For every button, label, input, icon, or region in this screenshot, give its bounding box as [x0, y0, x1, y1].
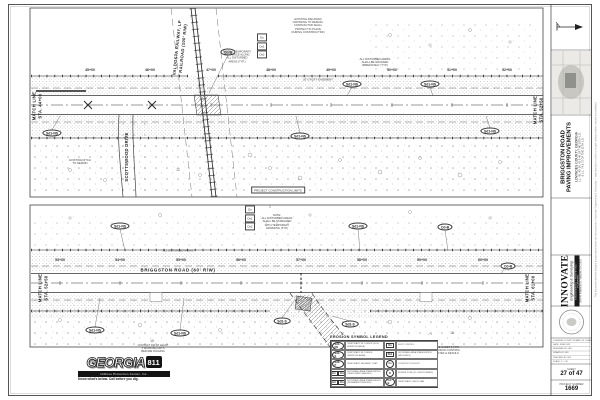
legend-symbol-cell: Ds1	[384, 350, 396, 359]
text-line: STA. 61+00	[530, 274, 536, 303]
georgia811-logo: GEORGIA 811 Utilities Protection Center,…	[78, 353, 170, 381]
erosion-symbol: Sd1-NS	[290, 133, 309, 140]
plan-sheet: MATCH LINESTA. 44+00MATCH LINESTA. 52+50…	[0, 0, 600, 400]
text-line: 20' UTILITY EASEMENT	[303, 78, 333, 81]
legend-row: Sd1-NSTEMPORARY SILT FENCE (NON-SENSITIV…	[331, 341, 437, 350]
erosion-legend: EROSION SYMBOL LEGEND Sd1-NSTEMPORARY SI…	[330, 335, 438, 388]
text-line: ALL DISTURBED AREAS	[163, 249, 194, 252]
title-block-info-rows: LOWNDES COUNTY BOARD OF COMMISSIONERSDAT…	[552, 339, 592, 365]
call-before-dig-tagline: Know what's below. Call before you dig.	[78, 377, 170, 381]
erosion-symbol: Sd1-S	[342, 321, 359, 328]
project-title-block: BRIGGSTON ROAD PAVING IMPROVEMENTS LOWND…	[552, 115, 592, 198]
legend-description: TEMPORARY CHECK DAM	[396, 378, 438, 387]
text-line: MATCH LINE	[524, 274, 530, 303]
erosion-symbol: Sd1-NS	[110, 223, 129, 230]
legend-symbol-cell: Sd2-P	[331, 359, 345, 368]
project-number-value: 1669	[565, 386, 578, 392]
legend-description: DISTURBED AREA STABILIZATION (PERMANENT …	[345, 378, 384, 387]
station-label: 53+00	[55, 258, 65, 262]
erosion-symbol: Cd-B	[500, 263, 515, 270]
project-title-line1: BRIGGSTON ROAD	[560, 130, 567, 184]
sheet-number-cell: SHEET 27 of 47	[552, 365, 592, 380]
station-label: 46+00	[145, 68, 155, 72]
firm-tagline: Engineering & Surveying	[570, 261, 574, 301]
station-label: 50+00	[387, 68, 397, 72]
legend-symbol-cell: Sd1-S	[331, 350, 345, 359]
sheet-value: 27 of 47	[560, 371, 582, 377]
station-label: 56+00	[236, 258, 246, 262]
text-line: STA. 44+00	[37, 92, 43, 121]
text-line: SCOTTSWOOD DRIVE	[124, 132, 130, 181]
text-line: MATCH LINE	[31, 92, 37, 121]
symbol-oval: Sd1-S	[332, 351, 344, 359]
legend-row: Sd2-PTEMPORARY SEDIMENT TRAPCoCONSTRUCTI…	[331, 359, 437, 368]
ref-number: 15	[450, 331, 454, 335]
firm-services-bar: ENGINEERING • SURVEYING • PLANNING	[575, 255, 580, 306]
text-line: MATCH LINE	[532, 96, 538, 125]
legend-row: Sd1-STEMPORARY SILT FENCE (SENSITIVE ARE…	[331, 350, 437, 359]
legend-symbol-cell: Cd-B	[384, 378, 396, 387]
symbol-box: Du	[386, 343, 393, 348]
station-label: 59+00	[417, 258, 427, 262]
station-label: 52+00	[502, 68, 512, 72]
erosion-symbol: Sd1-NS	[170, 330, 189, 337]
symbol-oval: Cd-B	[385, 378, 395, 386]
text-line: STA. 52+50	[43, 274, 49, 303]
ref-number: 1	[269, 205, 271, 209]
match-line-top-right: MATCH LINESTA. 52+50	[532, 96, 543, 125]
station-label: 49+00	[326, 68, 336, 72]
station-label: 54+00	[115, 258, 125, 262]
legend-symbol-cell: Du	[384, 341, 396, 350]
symbol-box: Ds1	[331, 371, 338, 376]
legend-description: CONSTRUCTION EXIT	[396, 359, 438, 368]
station-label: 47+00	[206, 68, 216, 72]
legend-description: DISTURBED AREA STABILIZATION (MULCHING)	[396, 350, 438, 359]
erosion-symbol: Sd1-NS	[420, 81, 439, 88]
erosion-symbol: Sd1-NS	[342, 81, 361, 88]
erosion-symbol-stack-bottom: DuDs1Ds2	[245, 204, 255, 231]
text-line: IMMEDIATELY (TYP.)	[360, 65, 391, 68]
legend-title: EROSION SYMBOL LEGEND	[330, 335, 438, 339]
text-line: GRASSING (TYP.)	[262, 227, 293, 230]
symbol-circle: B	[386, 369, 394, 377]
station-label: 55+00	[176, 258, 186, 262]
station-label: 57+00	[296, 258, 306, 262]
erosion-symbol: Sd1-S	[274, 318, 291, 325]
match-line-bottom-left: MATCH LINESTA. 52+50	[37, 274, 48, 303]
text-line: TO REMAIN	[69, 162, 91, 165]
disturbed-areas-note-top: ALL DISTURBED AREASSHALL BE GRASSEDIMMED…	[360, 58, 391, 68]
symbol-box: Ds1	[257, 42, 267, 50]
silt-fence-note: INSTALL TEMPORARYSILT FENCE ALONGALL DIS…	[223, 51, 251, 64]
symbol-box: Ds2	[338, 371, 345, 376]
erosion-symbol: Sd1-NS	[348, 223, 367, 230]
symbol-oval: Sd2-P	[332, 360, 344, 368]
legend-row: Ds3Ds4DISTURBED AREA STABILIZATION (PERM…	[331, 378, 437, 387]
side-road-label: SCOTTSWOOD DRIVE	[124, 132, 130, 181]
ref-number: 15	[150, 339, 154, 343]
number-811-badge: 811	[146, 356, 162, 368]
text-line: MATCH LINE	[37, 274, 43, 303]
georgia-logo-text: GEORGIA	[86, 355, 144, 370]
erosion-symbol: Sd1-NS	[42, 130, 61, 137]
text-line: STA. 52+50	[538, 96, 544, 125]
symbol-box: Ds4	[338, 380, 345, 385]
georgia811-wordmark: GEORGIA 811	[78, 353, 170, 371]
legend-description: TEMPORARY SEDIMENT TRAP	[345, 359, 384, 368]
legend-description: TEMPORARY SILT FENCE (SENSITIVE AREA)	[345, 350, 384, 359]
symbol-box: Ds2	[245, 223, 255, 231]
project-county: LOWNDES COUNTY, GEORGIA	[574, 132, 578, 182]
legend-symbol-cell: Ds1Ds2	[331, 369, 345, 378]
title-block-info-row: SCALE: 1" = 50'	[552, 360, 592, 364]
railroad-label: VALDOSTA RAILWAY, LPRAILROAD (100' R/W)	[171, 20, 188, 76]
legend-description: DUST CONTROL	[396, 341, 438, 350]
legend-description: BUFFER ZONE (25' UNDISTURBED)	[396, 369, 438, 378]
symbol-box: Ds1	[386, 352, 395, 357]
symbol-box: Ds1	[245, 214, 255, 222]
project-title-line2: PAVING IMPROVEMENTS	[566, 122, 573, 192]
legend-symbol-cell: Co	[384, 359, 396, 368]
project-land-lots-2: & L.L. 74 & 75 OF THE 11TH L.D.	[581, 137, 584, 176]
erosion-symbol-stack-top: DuDs1Ds2	[257, 32, 267, 59]
symbol-box: Du	[257, 33, 267, 41]
ref-number: 12	[176, 168, 180, 172]
text-line: DURING CONSTRUCTION	[292, 31, 325, 34]
station-label: 51+00	[447, 68, 457, 72]
match-line-bottom-right: MATCH LINESTA. 61+00	[524, 274, 535, 303]
station-label: 48+00	[266, 68, 276, 72]
symbol-box: Ds2	[257, 51, 267, 59]
disturbed-areas-note-bottom: NOTE:ALL DISTURBED AREASSHALL BE STABILI…	[262, 214, 293, 230]
plan-annotations: MATCH LINESTA. 44+00MATCH LINESTA. 52+50…	[0, 0, 600, 400]
upc-subtitle-bar: Utilities Protection Center, Inc.	[78, 371, 170, 377]
firm-logo-block: INNOVATE Engineering & Surveying ENGINEE…	[552, 255, 592, 306]
station-label: 45+00	[85, 68, 95, 72]
legend-symbol-cell: Sd1-NS	[331, 341, 345, 350]
symbol-box: Ds3	[331, 380, 338, 385]
symbol-oval: Sd1-NS	[332, 342, 344, 350]
erosion-symbol: Sd1-NS	[85, 327, 104, 334]
project-number-cell: PROJECT NUMBER 1669	[552, 381, 592, 395]
edge-disclaimer: This document and the designs incorporat…	[595, 102, 598, 297]
legend-description: DISTURBED AREA STABILIZATION (TEMPORARY …	[345, 369, 384, 378]
legend-row: Ds1Ds2DISTURBED AREA STABILIZATION (TEMP…	[331, 369, 437, 378]
station-label: 60+00	[478, 258, 488, 262]
railroad-crossing-note: EXISTING RAILROADCROSSING TO REMAIN.CONT…	[292, 18, 325, 34]
legend-symbol-cell: B	[384, 369, 396, 378]
firm-address: 2804 N. Patterson St., Valdosta, GA 3160…	[580, 259, 582, 303]
legend-description: TEMPORARY SILT FENCE (NON-SENSITIVE AREA…	[345, 341, 384, 350]
station-label: 58+00	[357, 258, 367, 262]
symbol-box: Du	[245, 205, 255, 213]
erosion-symbol: Sd1-NS	[480, 128, 499, 135]
construction-limits-note: PROJECT CONSTRUCTION LIMITS	[251, 187, 305, 194]
text-line: AREAS (TYP.)	[223, 60, 251, 63]
match-line-top-left: MATCH LINESTA. 44+00	[31, 92, 42, 121]
legend-symbol-cell: Ds3Ds4	[331, 378, 345, 387]
disturbed-areas-label: ALL DISTURBED AREAS	[163, 249, 194, 252]
ditch-note: EXISTING DITCHTO REMAIN	[69, 159, 91, 165]
legend-rows: Sd1-NSTEMPORARY SILT FENCE (NON-SENSITIV…	[330, 340, 438, 388]
erosion-symbol: Cd-B	[437, 224, 452, 231]
utility-easement-label: 20' UTILITY EASEMENT	[303, 78, 333, 81]
road-label: BRIGGSTON ROAD (60' R/W)	[141, 268, 216, 273]
symbol-circle: Co	[386, 360, 394, 368]
